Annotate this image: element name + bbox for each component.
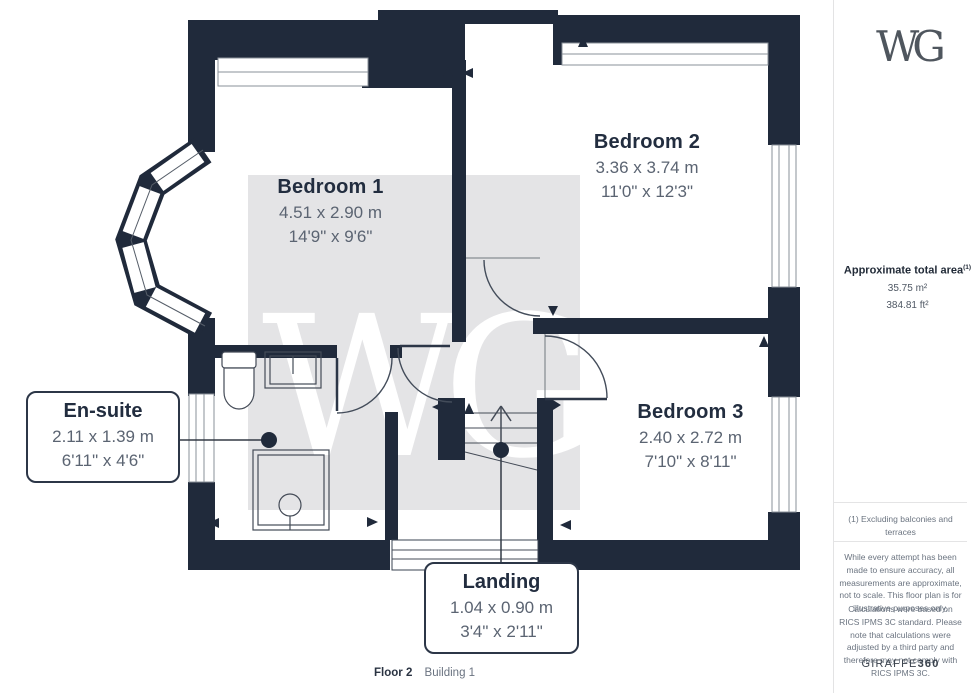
callout-landing: Landing 1.04 x 0.90 m 3'4" x 2'11" <box>424 562 579 654</box>
window-ensuite-left <box>189 394 214 482</box>
divider <box>834 502 967 503</box>
room-name: En-suite <box>38 400 168 423</box>
window-bedroom2-right <box>772 145 796 287</box>
ensuite-leader-dot <box>261 432 277 448</box>
giraffe360-logo: GIRAFFE360 <box>834 658 967 670</box>
info-sidebar: WG Approximate total area(1) 35.75 m² 38… <box>833 0 980 693</box>
callout-ensuite: En-suite 2.11 x 1.39 m 6'11" x 4'6" <box>26 391 180 483</box>
room-dimension-imperial: 3'4" x 2'11" <box>436 621 567 642</box>
watermark: WG <box>248 175 583 510</box>
floor-caption: Floor 2 Building 1 <box>374 667 475 679</box>
room-dimension-imperial: 6'11" x 4'6" <box>38 450 168 471</box>
area-footnote: (1) Excluding balconies and terraces <box>838 513 963 539</box>
room-name: Landing <box>436 571 567 594</box>
window-bedroom1-top <box>218 58 368 86</box>
total-area-m2: 35.75 m² <box>834 283 980 294</box>
floor-number: Floor 2 <box>374 667 412 679</box>
window-bedroom3-right <box>772 397 796 512</box>
building-number: Building 1 <box>425 667 476 679</box>
footnote-marker: (1) <box>963 264 971 271</box>
window-bedroom2-top <box>562 43 768 65</box>
room-dimension-metric: 1.04 x 0.90 m <box>436 597 567 618</box>
floorplan-page: WG <box>0 0 980 693</box>
total-area-block: Approximate total area(1) 35.75 m² 384.8… <box>834 264 980 311</box>
total-area-title-text: Approximate total area <box>844 265 963 277</box>
brand-suffix: 360 <box>918 658 940 670</box>
total-area-title: Approximate total area(1) <box>834 264 980 277</box>
bay-window <box>131 150 205 326</box>
divider <box>834 541 967 542</box>
toilet-symbol <box>222 352 256 409</box>
brand-name: GIRAFFE <box>861 658 917 670</box>
wg-logo: WG <box>834 22 980 71</box>
total-area-ft2: 384.81 ft² <box>834 300 980 311</box>
room-dimension-metric: 2.11 x 1.39 m <box>38 426 168 447</box>
floorplan-drawing: WG <box>0 0 833 693</box>
landing-leader-dot <box>493 442 509 458</box>
